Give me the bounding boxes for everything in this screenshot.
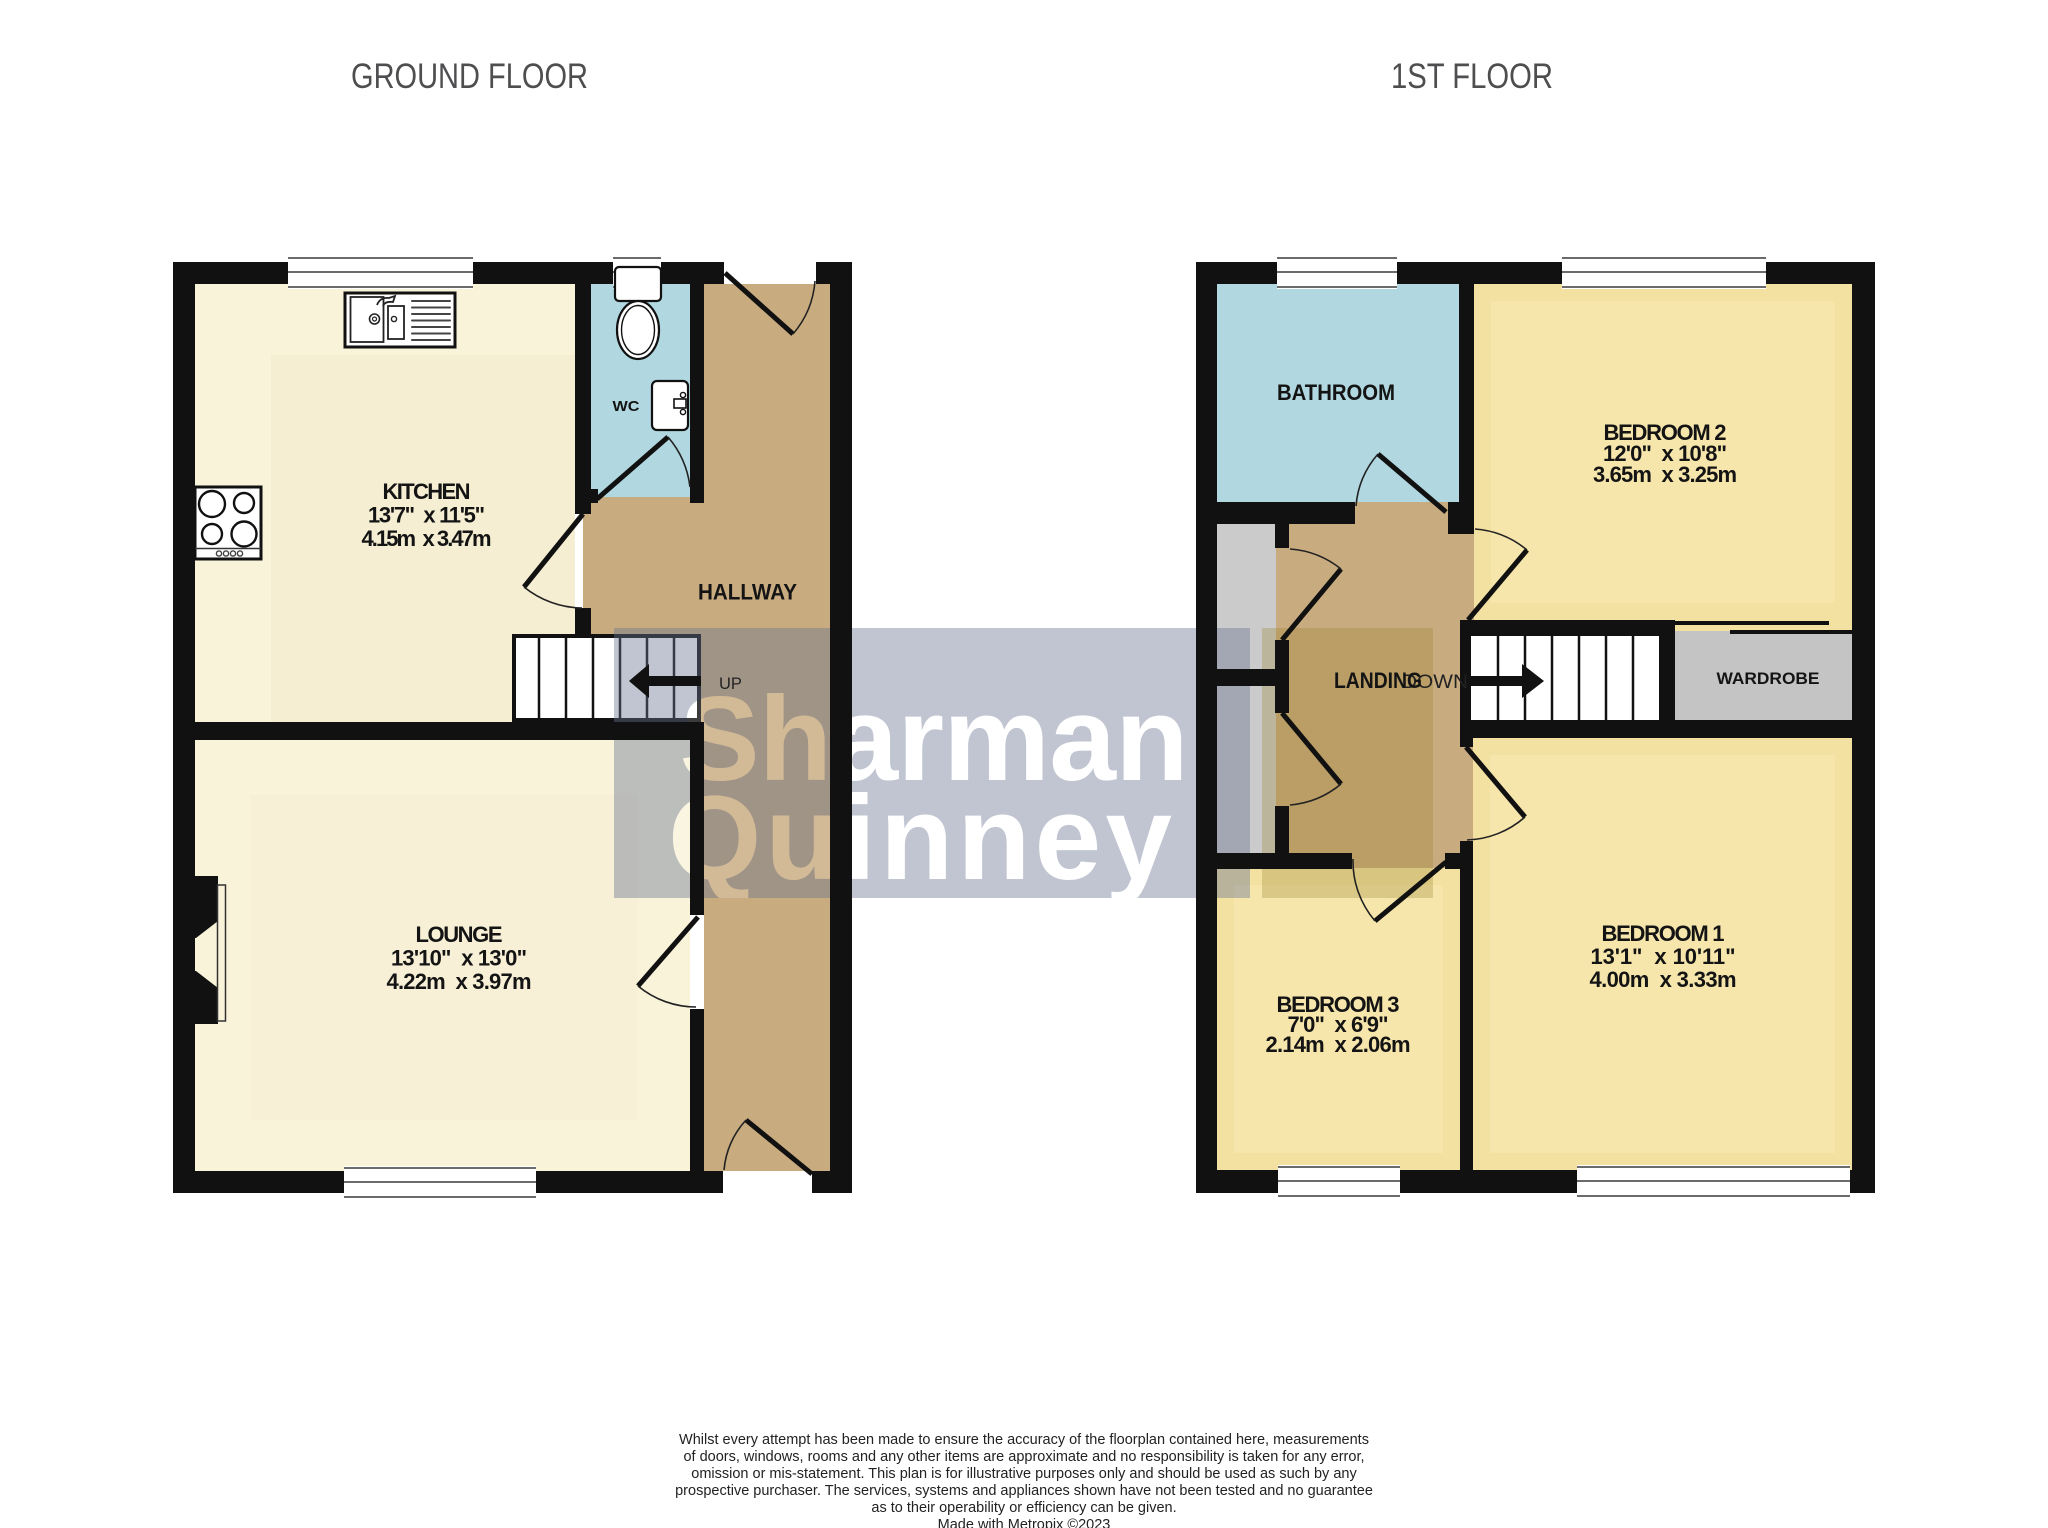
svg-text:HALLWAY: HALLWAY [698,580,797,605]
svg-text:Whilst every attempt has been: Whilst every attempt has been made to en… [679,1432,1369,1448]
svg-text:omission or mis-statement. Thi: omission or mis-statement. This plan is … [691,1466,1357,1482]
svg-text:WC: WC [613,398,640,415]
svg-text:13'7" x 11'5": 13'7" x 11'5" [368,503,485,528]
svg-text:4.15m x 3.47m: 4.15m x 3.47m [362,526,492,551]
svg-text:4.00m x 3.33m: 4.00m x 3.33m [1590,967,1737,992]
svg-text:4.22m x 3.97m: 4.22m x 3.97m [387,969,532,994]
svg-text:3.65m x 3.25m: 3.65m x 3.25m [1593,462,1737,487]
svg-text:Quinney: Quinney [668,771,1172,905]
svg-text:prospective purchaser. The ser: prospective purchaser. The services, sys… [675,1483,1373,1499]
svg-text:BEDROOM 1: BEDROOM 1 [1602,921,1725,946]
svg-text:as to their operability or eff: as to their operability or efficiency ca… [871,1500,1176,1516]
svg-text:UP: UP [719,675,742,693]
svg-text:GROUND FLOOR: GROUND FLOOR [351,57,588,96]
svg-text:LANDING: LANDING [1334,668,1422,693]
svg-text:WARDROBE: WARDROBE [1717,669,1820,688]
svg-text:BATHROOM: BATHROOM [1277,380,1395,405]
svg-text:13'1" x 10'11": 13'1" x 10'11" [1591,944,1736,969]
svg-text:Made with Metropix ©2023: Made with Metropix ©2023 [938,1517,1111,1528]
svg-text:KITCHEN: KITCHEN [383,479,471,504]
svg-text:of doors, windows, rooms and a: of doors, windows, rooms and any other i… [683,1449,1364,1465]
svg-text:2.14m x 2.06m: 2.14m x 2.06m [1266,1032,1411,1057]
svg-text:LOUNGE: LOUNGE [416,922,503,947]
svg-text:13'10" x 13'0": 13'10" x 13'0" [391,946,527,971]
svg-text:1ST FLOOR: 1ST FLOOR [1391,57,1553,96]
